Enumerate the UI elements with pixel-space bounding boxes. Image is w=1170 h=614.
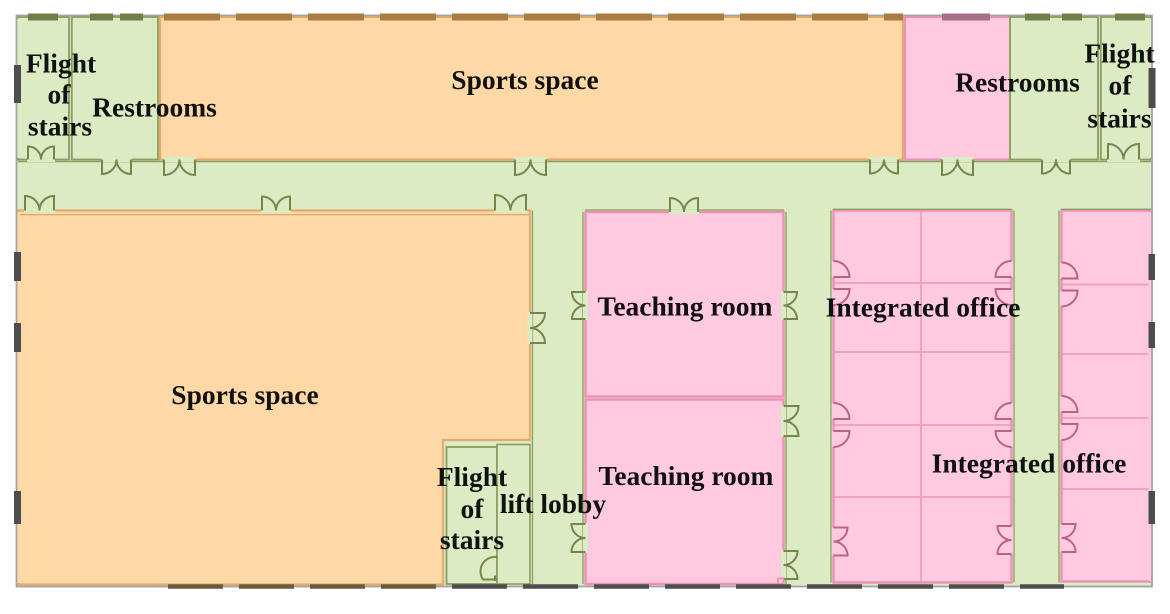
svg-text:stairs: stairs	[1087, 102, 1151, 133]
svg-text:Sports space: Sports space	[451, 64, 598, 95]
svg-text:lift lobby: lift lobby	[500, 488, 606, 519]
svg-text:Flight: Flight	[26, 47, 97, 78]
svg-text:Teaching room: Teaching room	[599, 460, 774, 491]
svg-text:stairs: stairs	[28, 110, 92, 141]
svg-text:Restrooms: Restrooms	[92, 91, 217, 122]
svg-text:Flight: Flight	[437, 461, 508, 492]
svg-text:Teaching room: Teaching room	[598, 290, 773, 321]
svg-text:stairs: stairs	[440, 524, 504, 555]
svg-text:Restrooms: Restrooms	[955, 66, 1080, 97]
svg-text:of: of	[461, 493, 485, 524]
svg-text:of: of	[1109, 69, 1133, 100]
svg-text:Sports space: Sports space	[171, 379, 318, 410]
svg-text:of: of	[48, 78, 72, 109]
svg-text:Flight: Flight	[1084, 37, 1155, 68]
svg-text:Integrated office: Integrated office	[826, 291, 1021, 322]
svg-text:Integrated office: Integrated office	[932, 447, 1127, 478]
